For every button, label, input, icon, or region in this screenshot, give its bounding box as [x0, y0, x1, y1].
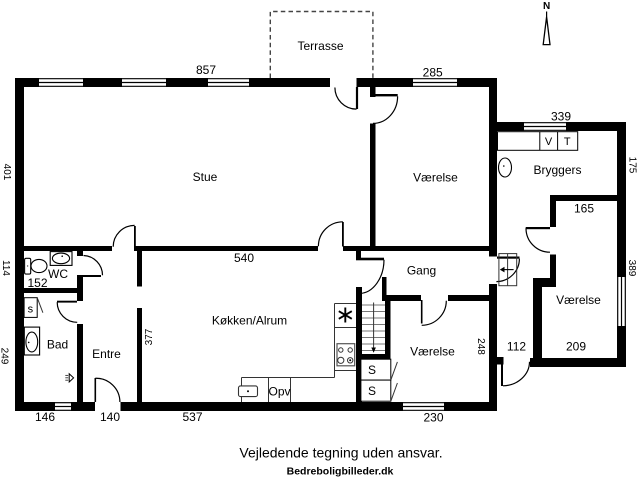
svg-text:Gang: Gang [407, 263, 436, 277]
svg-text:Værelse: Værelse [410, 344, 455, 358]
svg-text:N: N [543, 1, 550, 12]
svg-text:Køkken/Alrum: Køkken/Alrum [212, 313, 287, 327]
svg-text:Værelse: Værelse [556, 293, 601, 307]
svg-text:248: 248 [475, 338, 486, 355]
svg-text:Terrasse: Terrasse [297, 39, 343, 53]
svg-text:114: 114 [0, 260, 11, 276]
svg-text:Vejledende tegning uden ansvar: Vejledende tegning uden ansvar. [239, 445, 442, 461]
svg-text:140: 140 [100, 410, 120, 424]
svg-text:Bedreboligbilleder.dk: Bedreboligbilleder.dk [287, 466, 394, 478]
svg-text:175: 175 [626, 157, 637, 174]
svg-text:Opv: Opv [268, 385, 290, 399]
svg-text:T: T [564, 136, 571, 148]
svg-text:209: 209 [566, 339, 586, 353]
svg-text:401: 401 [1, 164, 12, 181]
svg-text:s: s [28, 303, 34, 315]
svg-text:537: 537 [182, 410, 202, 424]
svg-text:285: 285 [423, 66, 443, 80]
svg-text:S: S [368, 384, 376, 398]
svg-text:857: 857 [196, 63, 216, 77]
svg-text:Værelse: Værelse [413, 170, 458, 184]
svg-text:389: 389 [626, 260, 637, 277]
svg-text:540: 540 [234, 251, 254, 265]
svg-text:165: 165 [574, 201, 594, 215]
svg-text:Entre: Entre [92, 347, 121, 361]
svg-text:112: 112 [507, 339, 526, 353]
svg-text:V: V [545, 136, 553, 148]
svg-text:152: 152 [27, 276, 47, 290]
svg-text:Bryggers: Bryggers [533, 163, 581, 177]
svg-text:S: S [368, 363, 376, 377]
svg-text:230: 230 [423, 410, 443, 424]
svg-text:249: 249 [0, 348, 9, 365]
svg-text:Stue: Stue [193, 170, 218, 184]
svg-text:377: 377 [144, 328, 155, 345]
svg-text:339: 339 [551, 109, 571, 123]
svg-text:Bad: Bad [47, 337, 68, 351]
svg-text:146: 146 [35, 410, 55, 424]
svg-text:WC: WC [48, 267, 68, 281]
